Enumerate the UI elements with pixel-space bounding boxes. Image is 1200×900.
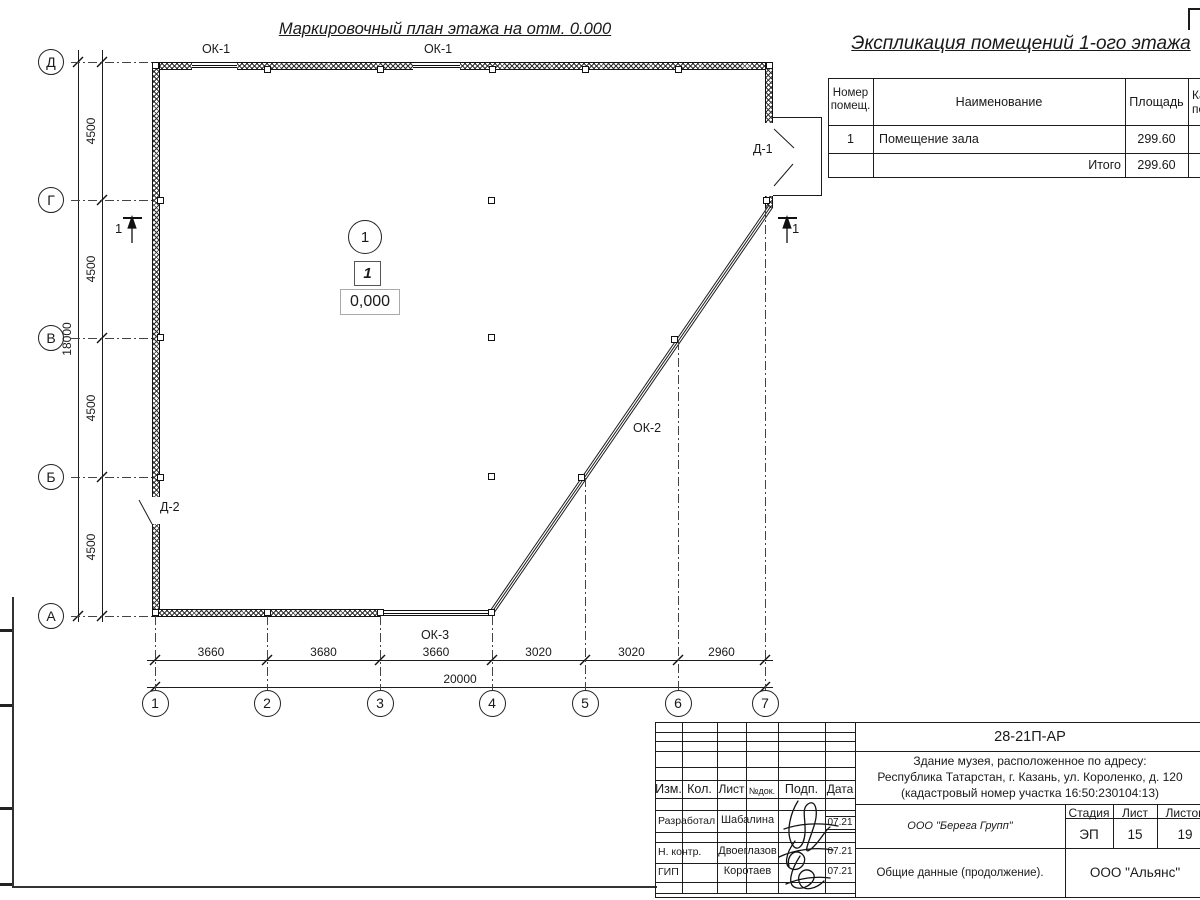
table-line-v (855, 722, 856, 897)
expl-header-number-2: помещ. (828, 100, 873, 112)
tb-col-kol: Кол. (682, 782, 717, 796)
axis-bubble-column: 3 (367, 690, 394, 717)
door-label-d2: Д-2 (160, 500, 180, 514)
dim-label-vertical: 4500 (84, 244, 98, 294)
expl-row-area: 299.60 (1125, 132, 1188, 146)
wall-top-segment (460, 62, 773, 70)
explication-title: Экспликация помещений 1-ого этажа (843, 33, 1199, 55)
vestibule-right-line (821, 117, 822, 196)
table-line-v (825, 722, 826, 893)
expl-header-name: Наименование (873, 95, 1125, 109)
plan-title: Маркировочный план этажа на отм. 0.000 (245, 20, 645, 39)
window-ok2-line (494, 207, 773, 613)
tb-address-3: (кадастровый номер участка 16:50:230104:… (855, 786, 1200, 800)
axis-bubble-column: 6 (665, 690, 692, 717)
axis-line-vertical (380, 616, 381, 690)
axis-line-horizontal (71, 338, 152, 339)
table-line-h (825, 816, 855, 817)
column-marker (766, 62, 773, 69)
table-line-v (778, 722, 779, 893)
tb-sheet-value: 15 (1113, 827, 1157, 842)
table-line-v (1113, 804, 1114, 848)
column-marker (671, 336, 678, 343)
tb-name-developer: Шабалина (717, 814, 778, 826)
tb-doc-title: Общие данные (продолжение). (855, 867, 1065, 879)
frame-tick (0, 883, 12, 886)
tb-role-gip: ГИП (658, 866, 679, 878)
table-line-h (828, 177, 1200, 178)
expl-total-area: 299.60 (1125, 158, 1188, 172)
expl-header-extra-2: по (1192, 102, 1200, 116)
table-line-v (1125, 78, 1126, 177)
column-marker (264, 609, 271, 616)
column-marker (488, 473, 495, 480)
axis-line-horizontal (71, 477, 152, 478)
table-line-v (828, 78, 829, 177)
tb-date-developer: 07.21 (825, 817, 855, 828)
axis-line-vertical (585, 478, 586, 690)
axis-line-horizontal (71, 200, 152, 201)
axis-bubble-column: 4 (479, 690, 506, 717)
frame-tick (0, 629, 12, 632)
column-marker (377, 66, 384, 73)
frame-tick (0, 807, 12, 810)
dim-label-horizontal: 3020 (509, 645, 569, 659)
axis-bubble-column: 7 (752, 690, 779, 717)
table-line-h (828, 153, 1200, 154)
column-marker (578, 474, 585, 481)
wall-left-segment (152, 524, 160, 617)
axis-line-vertical (492, 616, 493, 690)
axis-line-vertical (267, 616, 268, 690)
column-marker (488, 197, 495, 204)
dim-label-vertical: 4500 (84, 106, 98, 156)
column-marker (488, 334, 495, 341)
column-marker (157, 197, 164, 204)
tb-col-izm: Изм. (655, 782, 682, 796)
window-label-ok2: ОК-2 (633, 421, 661, 435)
axis-line-vertical (678, 341, 679, 690)
axis-bubble-row: Б (38, 464, 64, 490)
tb-address-2: Республика Татарстан, г. Казань, ул. Кор… (855, 770, 1200, 784)
tb-col-ndoc: №док. (746, 786, 778, 796)
table-line-h (855, 804, 1200, 805)
table-line-h (655, 893, 855, 894)
tb-role-ncontrol: Н. контр. (658, 846, 701, 858)
tb-stage-value: ЭП (1065, 827, 1113, 842)
column-marker (489, 66, 496, 73)
tb-date-gip: 07.21 (825, 866, 855, 877)
tb-doc-code: 28-21П-АР (855, 729, 1200, 745)
tb-col-podp: Подп. (778, 782, 825, 796)
dim-label-horizontal: 3020 (602, 645, 662, 659)
column-marker (763, 197, 770, 204)
expl-row-name: Помещение зала (879, 132, 979, 146)
column-marker (582, 66, 589, 73)
column-marker (675, 66, 682, 73)
table-line-v (1157, 804, 1158, 848)
wall-left-segment (152, 62, 160, 497)
table-line-v (1065, 804, 1066, 897)
axis-bubble-column: 5 (572, 690, 599, 717)
wall-right-segment (765, 62, 773, 123)
dim-label-vertical-total: 18000 (60, 314, 74, 364)
column-marker (488, 609, 495, 616)
window-ok2-line (492, 206, 771, 612)
axis-bubble-column: 1 (142, 690, 169, 717)
section-arrowhead-right (783, 217, 791, 228)
dim-label-horizontal: 3660 (406, 645, 466, 659)
column-marker (157, 474, 164, 481)
window-label-ok1-a: ОК-1 (189, 42, 243, 56)
window-ok1-a (192, 62, 237, 68)
section-mark-right-label: 1 (792, 221, 799, 236)
axis-line-horizontal (71, 62, 152, 63)
axis-bubble-column: 2 (254, 690, 281, 717)
corner-mark-top (1188, 8, 1200, 10)
dim-line-bottom-1 (147, 660, 773, 661)
dim-label-vertical: 4500 (84, 383, 98, 433)
expl-row-number: 1 (828, 132, 873, 146)
table-line-v (746, 722, 747, 893)
dim-label-horizontal-total: 20000 (430, 672, 490, 686)
table-line-v (717, 722, 718, 893)
window-ok2-line (490, 205, 769, 611)
expl-header-number-1: Номер (828, 87, 873, 99)
tb-date-ncontrol: 07.21 (825, 846, 855, 857)
window-ok3 (380, 610, 492, 616)
column-marker (377, 609, 384, 616)
axis-bubble-row: Д (38, 49, 64, 75)
vestibule-bottom-line (773, 195, 821, 196)
tb-org: ООО "Альянс" (1065, 865, 1200, 880)
axis-bubble-row: А (38, 603, 64, 629)
table-line-h (1065, 818, 1200, 819)
table-line-h (828, 78, 1200, 79)
dim-line-left-1 (102, 50, 103, 622)
door-d2-leaf (139, 500, 152, 524)
axis-line-horizontal (71, 616, 152, 617)
table-line-h (828, 125, 1200, 126)
table-line-v (1188, 78, 1189, 177)
window-ok1-b (413, 62, 460, 68)
dim-label-horizontal: 3660 (181, 645, 241, 659)
tb-sheets-value: 19 (1157, 827, 1200, 842)
table-line-h (655, 722, 1200, 723)
tb-name-gip: Коротаев (717, 865, 778, 877)
frame-bottom-line (12, 886, 657, 888)
corner-mark-side (1188, 8, 1190, 30)
door-d1-leaf (774, 129, 794, 148)
table-line-v (873, 78, 874, 177)
tb-org-designer: ООО "Берега Групп" (855, 820, 1065, 832)
column-marker (152, 609, 159, 616)
table-line-h (855, 848, 1200, 849)
section-mark-left-label: 1 (115, 221, 122, 236)
frame-tick (0, 704, 12, 707)
table-line-h (655, 751, 1200, 752)
axis-bubble-row: Г (38, 187, 64, 213)
column-marker (264, 66, 271, 73)
room-type-box: 1 (354, 261, 381, 286)
tb-col-data: Дата (825, 782, 855, 796)
axis-line-vertical (765, 208, 766, 690)
column-marker (157, 334, 164, 341)
dim-line-bottom-2 (147, 687, 773, 688)
dim-label-horizontal: 3680 (294, 645, 354, 659)
tb-address-1: Здание музея, расположенное по адресу: (855, 754, 1200, 768)
dim-label-vertical: 4500 (84, 522, 98, 572)
table-line-h (655, 897, 1200, 898)
table-line-h (825, 829, 855, 830)
tb-role-developer: Разработал (658, 815, 715, 827)
dim-label-horizontal: 2960 (692, 645, 752, 659)
expl-header-extra-1: Ка (1192, 88, 1200, 102)
window-label-ok1-b: ОК-1 (411, 42, 465, 56)
door-d1-leaf (774, 164, 793, 186)
section-arrowhead-left (128, 217, 136, 228)
axis-line-vertical (155, 616, 156, 690)
drawing-sheet: Маркировочный план этажа на отм. 0.000 Э… (0, 0, 1200, 900)
tb-name-ncontrol: Двоеглазов (717, 845, 778, 857)
room-number-bubble: 1 (348, 220, 382, 254)
dim-line-left-2 (78, 50, 79, 622)
expl-header-area: Площадь (1125, 95, 1188, 109)
elevation-mark: 0,000 (340, 289, 400, 315)
expl-total-label: Итого (873, 158, 1121, 172)
table-line-v (655, 722, 656, 897)
vestibule-top-line (773, 117, 821, 118)
frame-left-line (12, 597, 14, 886)
column-marker (152, 62, 159, 69)
tb-col-list: Лист (717, 782, 746, 796)
door-label-d1: Д-1 (753, 142, 773, 156)
table-line-v (682, 722, 683, 893)
window-label-ok3: ОК-3 (408, 628, 462, 642)
